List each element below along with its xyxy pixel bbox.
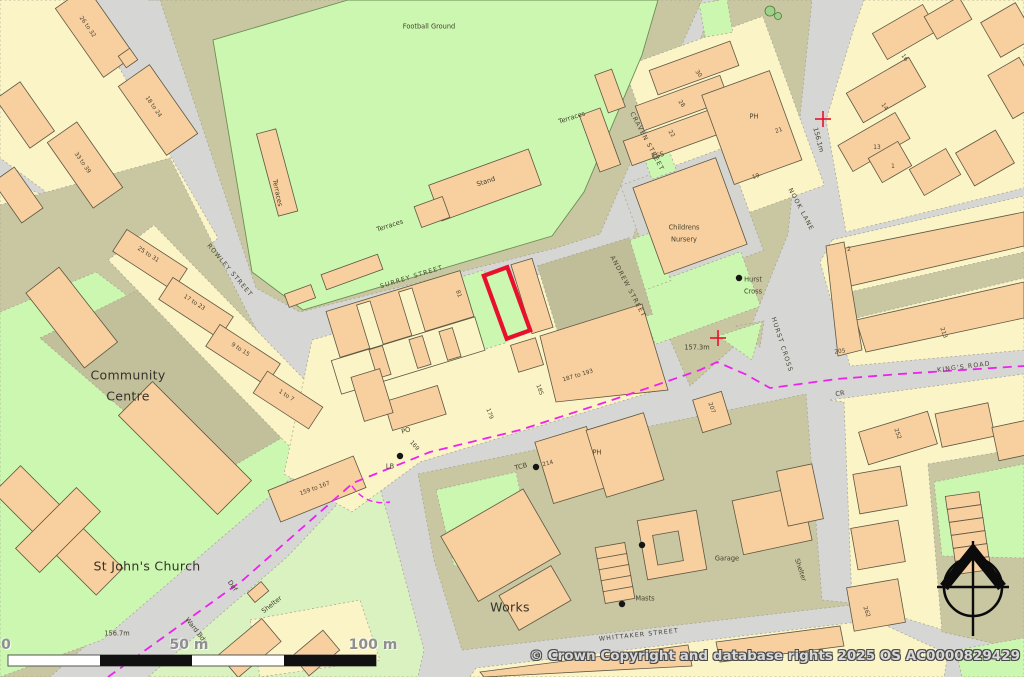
map-graphics [0, 0, 1024, 677]
map-canvas[interactable]: Football Ground Stand Terraces Terraces … [0, 0, 1024, 677]
tcb-dot [533, 464, 539, 470]
hurst-cross-dot [736, 275, 742, 281]
scale-label-fifty: 50 m [170, 637, 209, 653]
scale-bar [8, 655, 376, 666]
mast-dot [639, 542, 645, 548]
lb-dot [397, 453, 403, 459]
mast-dot [619, 601, 625, 607]
copyright-notice: © Crown Copyright and database rights 20… [530, 648, 1020, 664]
scale-label-zero: 0 [1, 637, 11, 653]
scale-label-hundred: 100 m [349, 637, 398, 653]
